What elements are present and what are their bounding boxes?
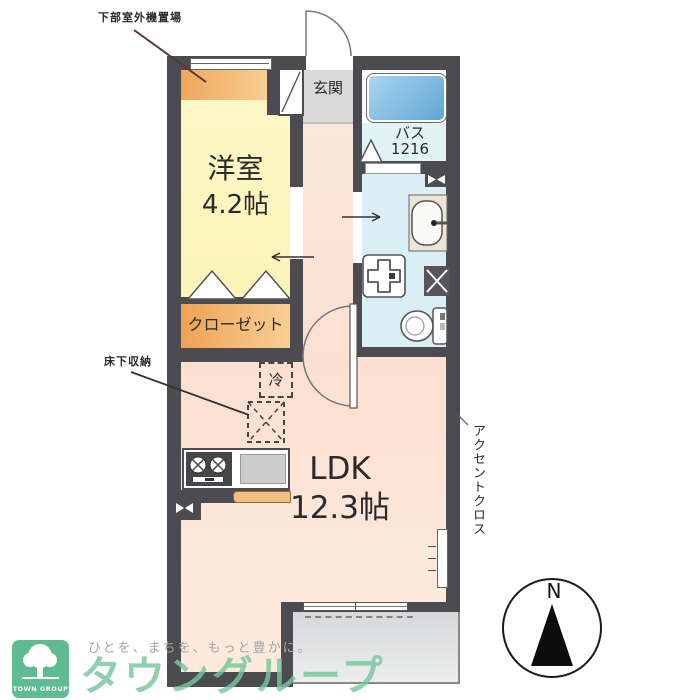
bath-door-strip [365, 163, 421, 174]
entrance-door-arc-icon [296, 8, 358, 60]
accent-cloth-leader-line [453, 410, 471, 428]
floorplan-image: 冷 洋室 4.2帖 クローゼット 玄関 バス 1216 LDK 12.3帖 下部… [0, 0, 700, 700]
closet-folding-door-icon [186, 266, 294, 302]
stove-burners-icon [186, 452, 232, 486]
washbasin-icon [408, 192, 450, 254]
balcony-window [303, 602, 408, 611]
refrigerator-label: 冷 [268, 372, 283, 389]
water-heater [424, 266, 450, 296]
accent-cloth-label: アクセントクロス [464, 424, 484, 544]
underfloor-storage-leader-line [128, 370, 252, 418]
toilet-icon [398, 305, 450, 347]
ldk-side-window-tick2 [428, 558, 436, 559]
ldk-side-window-tick3 [428, 570, 436, 571]
closet-label: クローゼット [181, 314, 290, 336]
sliding-door-arrow-sanitary-icon [340, 210, 384, 224]
washing-machine-pan-icon [362, 254, 406, 298]
balcony-window-mullion [355, 603, 356, 610]
underfloor-storage-label: 床下収納 [104, 356, 152, 368]
bathtub [367, 74, 446, 122]
ldk-side-window-tick1 [428, 546, 436, 547]
balcony-boundary-dashed-line [305, 616, 413, 618]
refrigerator-placeholder: 冷 [259, 362, 293, 398]
outdoor-unit-leader-line [130, 28, 210, 86]
western-room-size: 4.2帖 [181, 190, 290, 220]
ldk-size: 12.3帖 [258, 490, 422, 526]
wall-top-right [353, 56, 460, 70]
kitchen-unit [182, 448, 290, 490]
underfloor-storage-marker-icon [246, 400, 286, 444]
sliding-door-western-room [290, 187, 303, 259]
tree-logo-icon [12, 640, 69, 684]
shoe-cabinet-diagonal-icon [280, 70, 302, 114]
compass-north-label: N [534, 580, 574, 602]
gas-valve-kitchen-icon [174, 501, 195, 515]
logo-square-text: TOWN GROUP [12, 684, 69, 696]
entrance-label: 玄関 [303, 78, 353, 98]
bath-size: 1216 [374, 141, 446, 157]
bath-name: バス [374, 125, 446, 141]
ldk-door-arc-icon [296, 300, 362, 412]
ldk-name: LDK [275, 452, 405, 486]
ldk-side-window [437, 529, 448, 588]
sliding-door-sanitary [353, 192, 362, 263]
western-room-name: 洋室 [181, 153, 290, 185]
outdoor-unit-label: 下部室外機置場 [98, 12, 182, 24]
water-heater-x-icon [424, 266, 450, 296]
wall-closet-bottom [167, 348, 303, 362]
town-group-logo: TOWN GROUP [12, 640, 69, 698]
brand-name-watermark: タウングループ [80, 654, 386, 699]
stove [186, 452, 232, 486]
gas-valve-icon [425, 172, 448, 187]
gas-valve-sanitary [425, 172, 448, 187]
sliding-door-arrow-western-room-icon [268, 250, 318, 264]
wall-shoe-cabinet-side [267, 70, 278, 115]
shoe-cabinet [278, 68, 304, 116]
wall-sanitary-bottom [353, 347, 460, 357]
